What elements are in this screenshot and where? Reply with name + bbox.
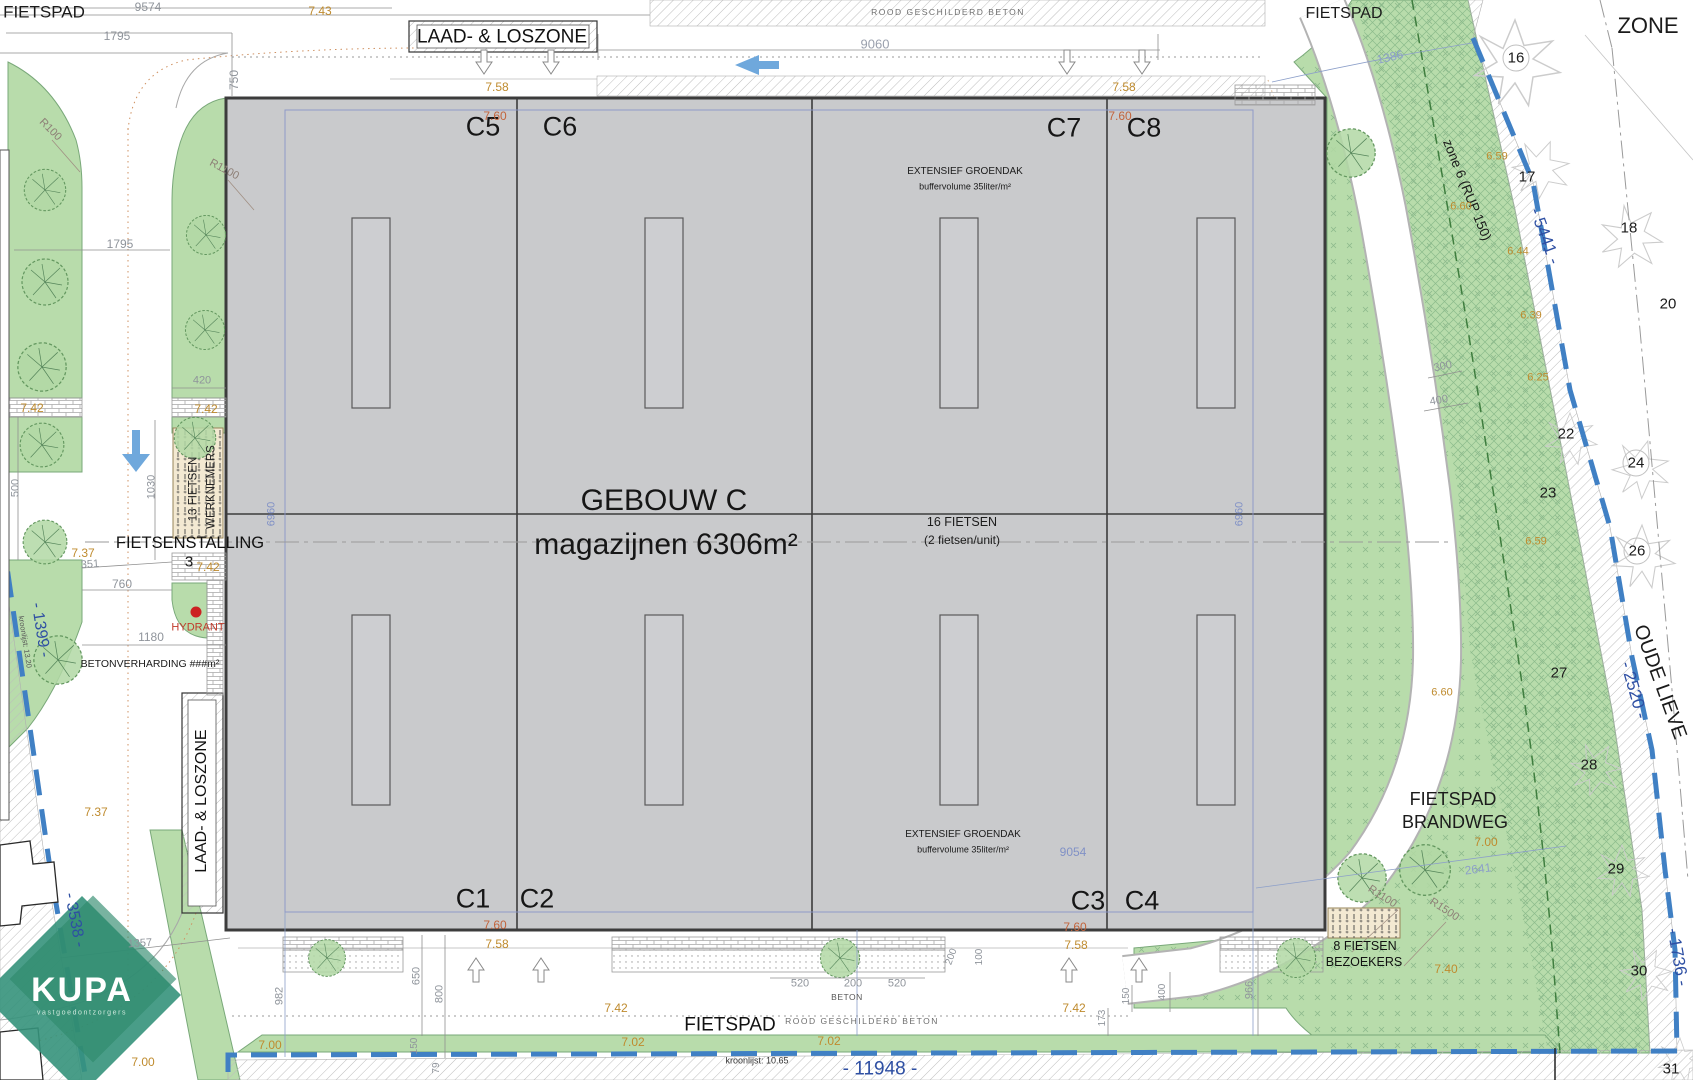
blue-arrow-left [735, 55, 779, 75]
site-plan: FIETSPAD957417957.43750LAAD- & LOSZONE90… [0, 0, 1693, 1080]
hatch-top-band [650, 0, 1265, 26]
green-quarter-hydrant [172, 583, 207, 638]
blue-arrow-down [122, 430, 150, 472]
hatch-bottom-band [228, 1050, 1693, 1080]
hatch-dock-apron-top [597, 76, 1265, 96]
building-gebouw-c [226, 98, 1325, 930]
site-plan-drawing [0, 0, 1693, 1080]
laadzone-left-box [182, 693, 223, 913]
hydrant-icon [191, 607, 202, 618]
laadzone-top-box [409, 21, 597, 52]
